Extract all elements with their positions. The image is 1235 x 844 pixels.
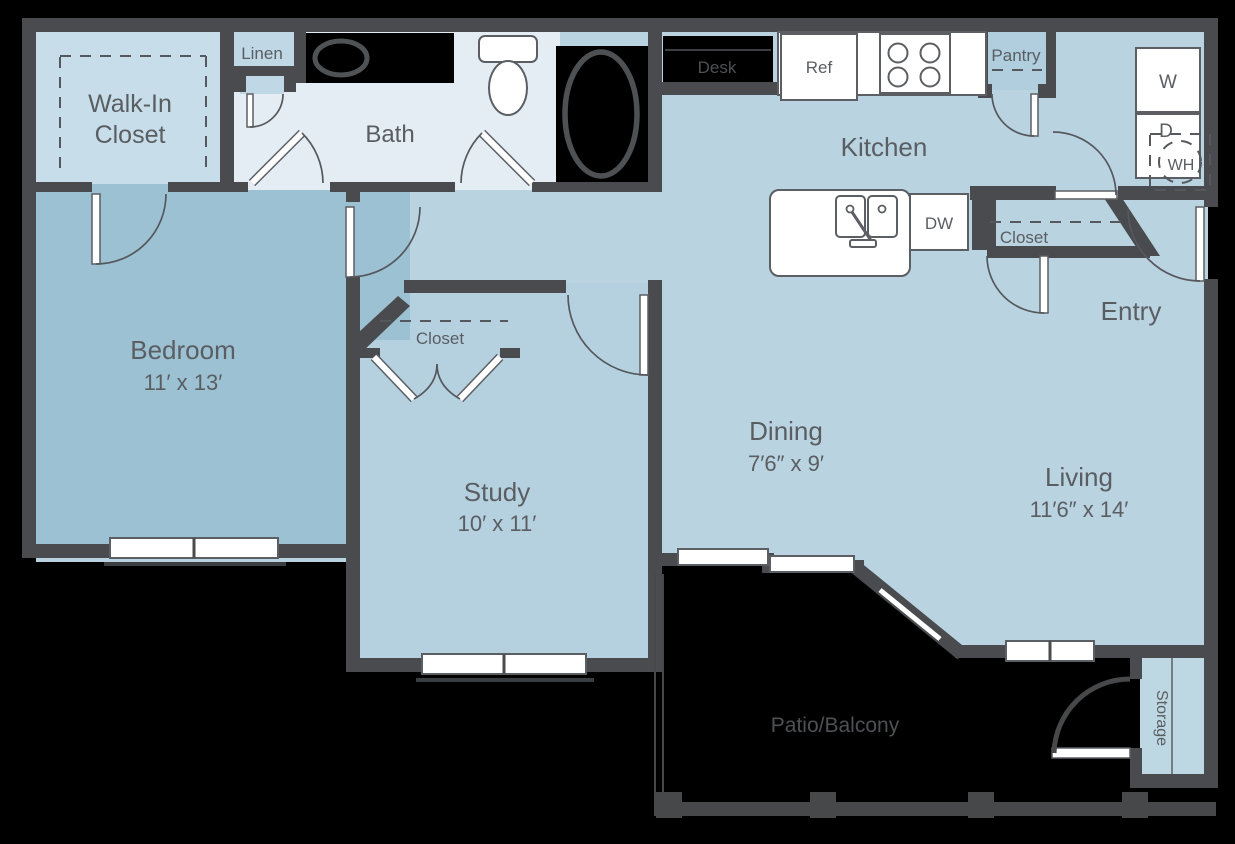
refrigerator-label: Ref	[806, 58, 833, 77]
wall-bath-right	[648, 18, 662, 192]
wall-bath-bottom-c	[532, 182, 648, 192]
wall-wic-right	[220, 32, 234, 182]
wall-entry-closet-bottom	[987, 246, 1150, 258]
desk-label: Desk	[698, 58, 737, 77]
floor-plan: Walk-In Closet Linen Bath Desk Ref Kitch…	[0, 0, 1235, 844]
wall-bedroom-door-stub	[346, 192, 360, 202]
entry-label: Entry	[1101, 296, 1162, 326]
study-window-sill	[416, 678, 594, 682]
bath-label: Bath	[365, 121, 414, 148]
bedroom-window-sill	[104, 562, 286, 566]
wall-vanity-left	[294, 32, 306, 83]
wall-top	[22, 18, 1218, 32]
wall-linen-stub-left	[234, 66, 246, 92]
wall-bath-bottom-a	[234, 182, 248, 192]
patio-rail-post	[1122, 792, 1148, 818]
kitchen-label: Kitchen	[841, 132, 928, 162]
faucet-base	[850, 240, 876, 247]
dishwasher-label: DW	[925, 214, 953, 233]
wall-storage-left-upper	[1130, 645, 1142, 679]
pantry-label: Pantry	[991, 46, 1041, 65]
wall-pantry-stub-right	[1038, 84, 1056, 98]
dining-label: Dining	[749, 416, 823, 446]
toilet-tank	[479, 36, 537, 62]
storage-floor	[1140, 655, 1206, 777]
bedroom-dims: 11′ x 13′	[144, 370, 223, 395]
wall-living-bottom-left	[955, 645, 1010, 658]
bedroom-door-leaf	[346, 207, 354, 277]
bedroom-label: Bedroom	[130, 335, 236, 365]
dining-window-b	[770, 556, 854, 572]
linen-label: Linen	[241, 44, 283, 63]
wall-wic-bottom-right	[168, 182, 234, 192]
wall-pantry-right	[1046, 32, 1056, 90]
wall-study-top	[404, 280, 566, 293]
storage-door-leaf	[1052, 748, 1130, 758]
toilet-bowl	[489, 61, 527, 115]
entry-closet-label: Closet	[1000, 228, 1048, 247]
patio-rail-post	[968, 792, 994, 818]
walk-in-closet-label-2: Closet	[95, 121, 166, 149]
linen-door-leaf	[247, 94, 253, 127]
pantry-door-leaf	[1031, 94, 1038, 136]
laundry-door-leaf	[1055, 191, 1117, 199]
patio-label: Patio/Balcony	[771, 714, 900, 737]
study-door-leaf	[640, 295, 648, 375]
wall-living-bottom-right	[1090, 645, 1135, 658]
wall-storage-right	[1204, 640, 1218, 788]
entry-closet-door-leaf	[1040, 256, 1048, 313]
wall-study-bottom-left	[346, 658, 432, 672]
storage-label: Storage	[1153, 690, 1170, 746]
wall-laundry-bottom-right	[1118, 186, 1204, 200]
patio-rail-post	[810, 792, 836, 818]
dining-dims: 7′6″ x 9′	[748, 451, 824, 476]
wall-right-lower	[1204, 279, 1218, 651]
dining-window-a	[678, 549, 768, 565]
living-label: Living	[1045, 462, 1113, 492]
wall-study-bottom-right	[578, 658, 662, 672]
sink-basin-left	[836, 196, 865, 237]
wall-dw-block	[972, 186, 996, 250]
wall-desk-bottom	[656, 82, 778, 95]
tub-deck	[556, 46, 648, 184]
wall-left	[22, 18, 36, 558]
study-dims: 10′ x 11′	[458, 511, 537, 536]
living-dims: 11′6″ x 14′	[1030, 497, 1129, 522]
wall-bath-bottom-b	[330, 182, 455, 192]
patio-rail-post	[656, 792, 682, 818]
study-closet-label: Closet	[416, 329, 464, 348]
front-door-leaf	[1196, 207, 1204, 281]
sink-basin-right	[868, 196, 897, 237]
water-heater-label: WH	[1168, 157, 1195, 174]
living-floor-lower	[962, 560, 1205, 652]
wall-wic-bottom-left	[36, 182, 92, 192]
wic-door-leaf	[92, 194, 100, 264]
walk-in-closet-label-1: Walk-In	[88, 90, 172, 118]
washer-label: W	[1159, 72, 1177, 93]
study-floor	[346, 283, 662, 665]
study-label: Study	[464, 477, 531, 507]
wall-closet-jamb-right	[500, 348, 520, 358]
dryer-label: D	[1159, 121, 1173, 142]
